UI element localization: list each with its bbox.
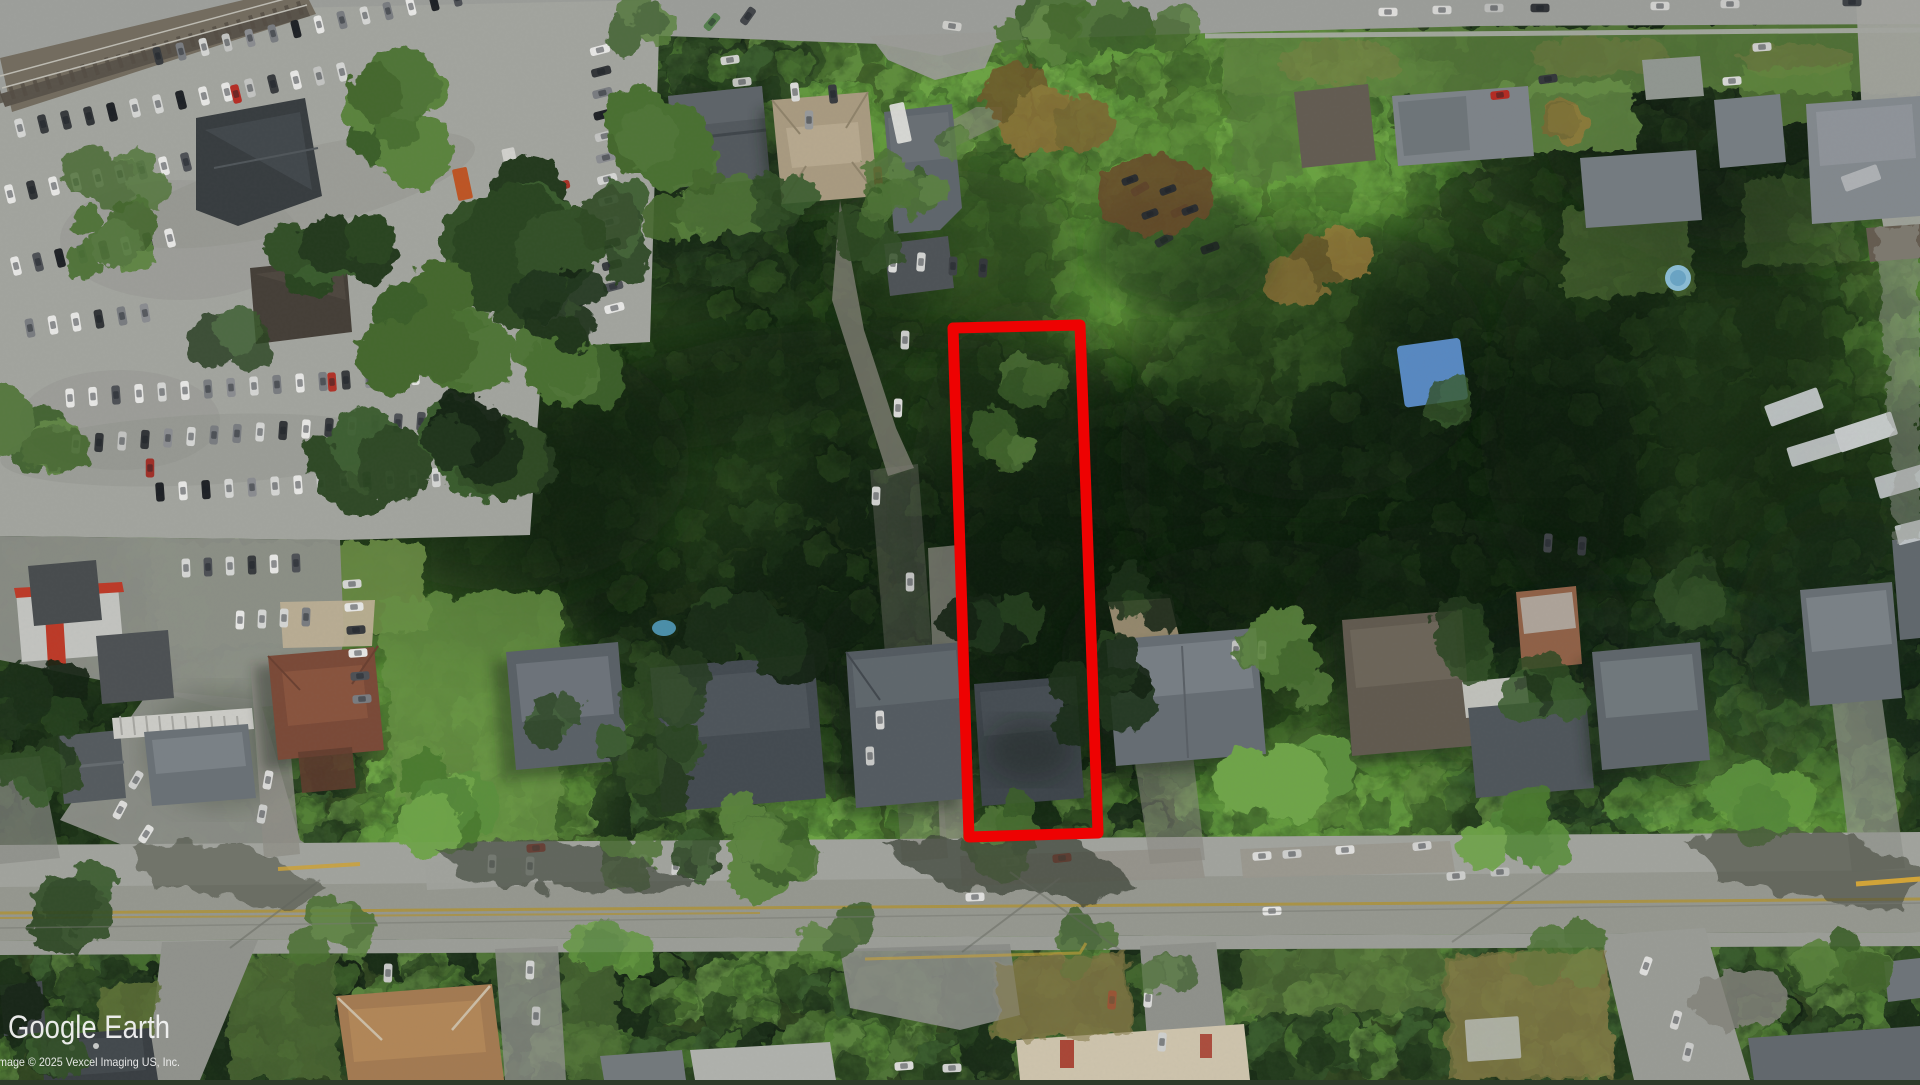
svg-text:Google Earth: Google Earth — [8, 1009, 170, 1045]
svg-text:mage © 2025 Vexcel Imaging US,: mage © 2025 Vexcel Imaging US, Inc. — [0, 1055, 180, 1069]
